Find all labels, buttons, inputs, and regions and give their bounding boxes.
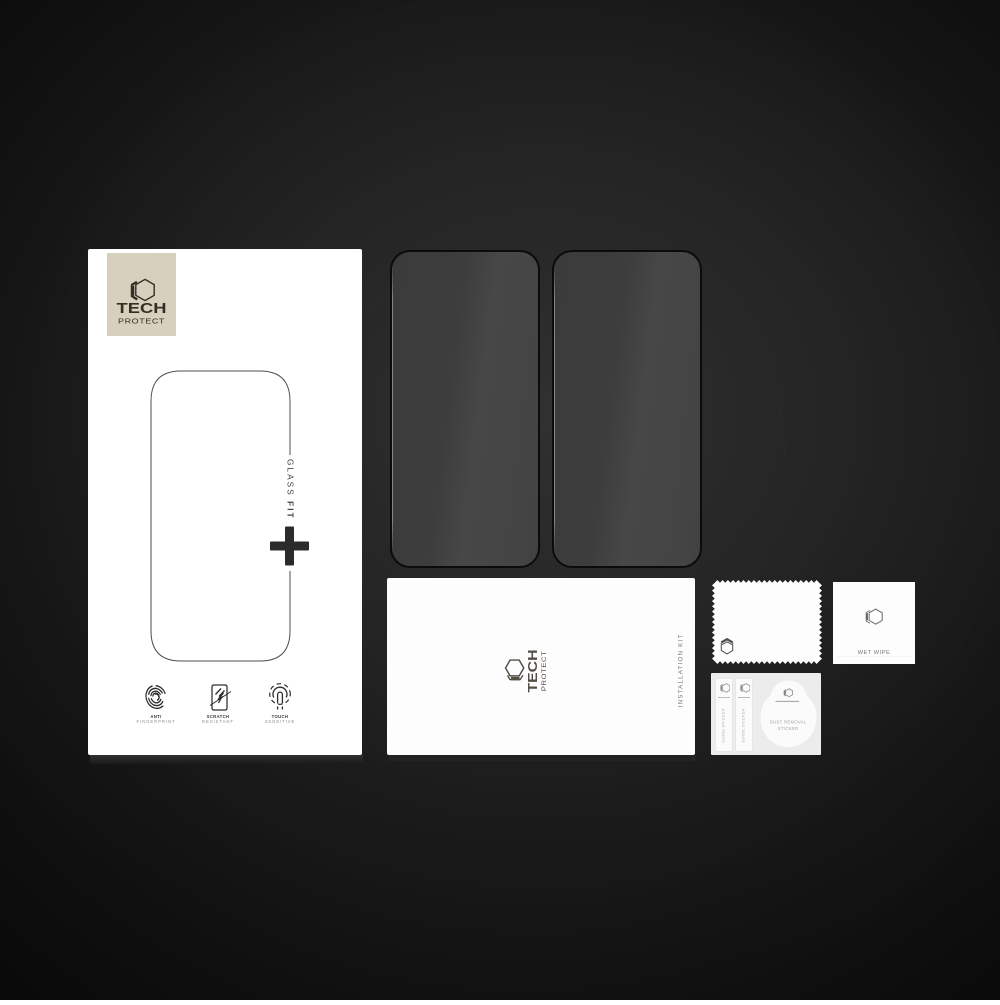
svg-text:RESISTANT: RESISTANT <box>202 719 234 724</box>
svg-text:PROTECT: PROTECT <box>541 651 548 691</box>
svg-text:TECH: TECH <box>526 650 540 693</box>
svg-text:GLASS FIT: GLASS FIT <box>286 459 295 520</box>
svg-text:DUST REMOVAL: DUST REMOVAL <box>770 719 807 724</box>
svg-text:FINGERPRINT: FINGERPRINT <box>136 719 175 724</box>
svg-text:SENSITIVE: SENSITIVE <box>265 719 296 724</box>
svg-text:WET WIPE: WET WIPE <box>858 650 891 656</box>
svg-text:STICKER: STICKER <box>778 725 799 730</box>
